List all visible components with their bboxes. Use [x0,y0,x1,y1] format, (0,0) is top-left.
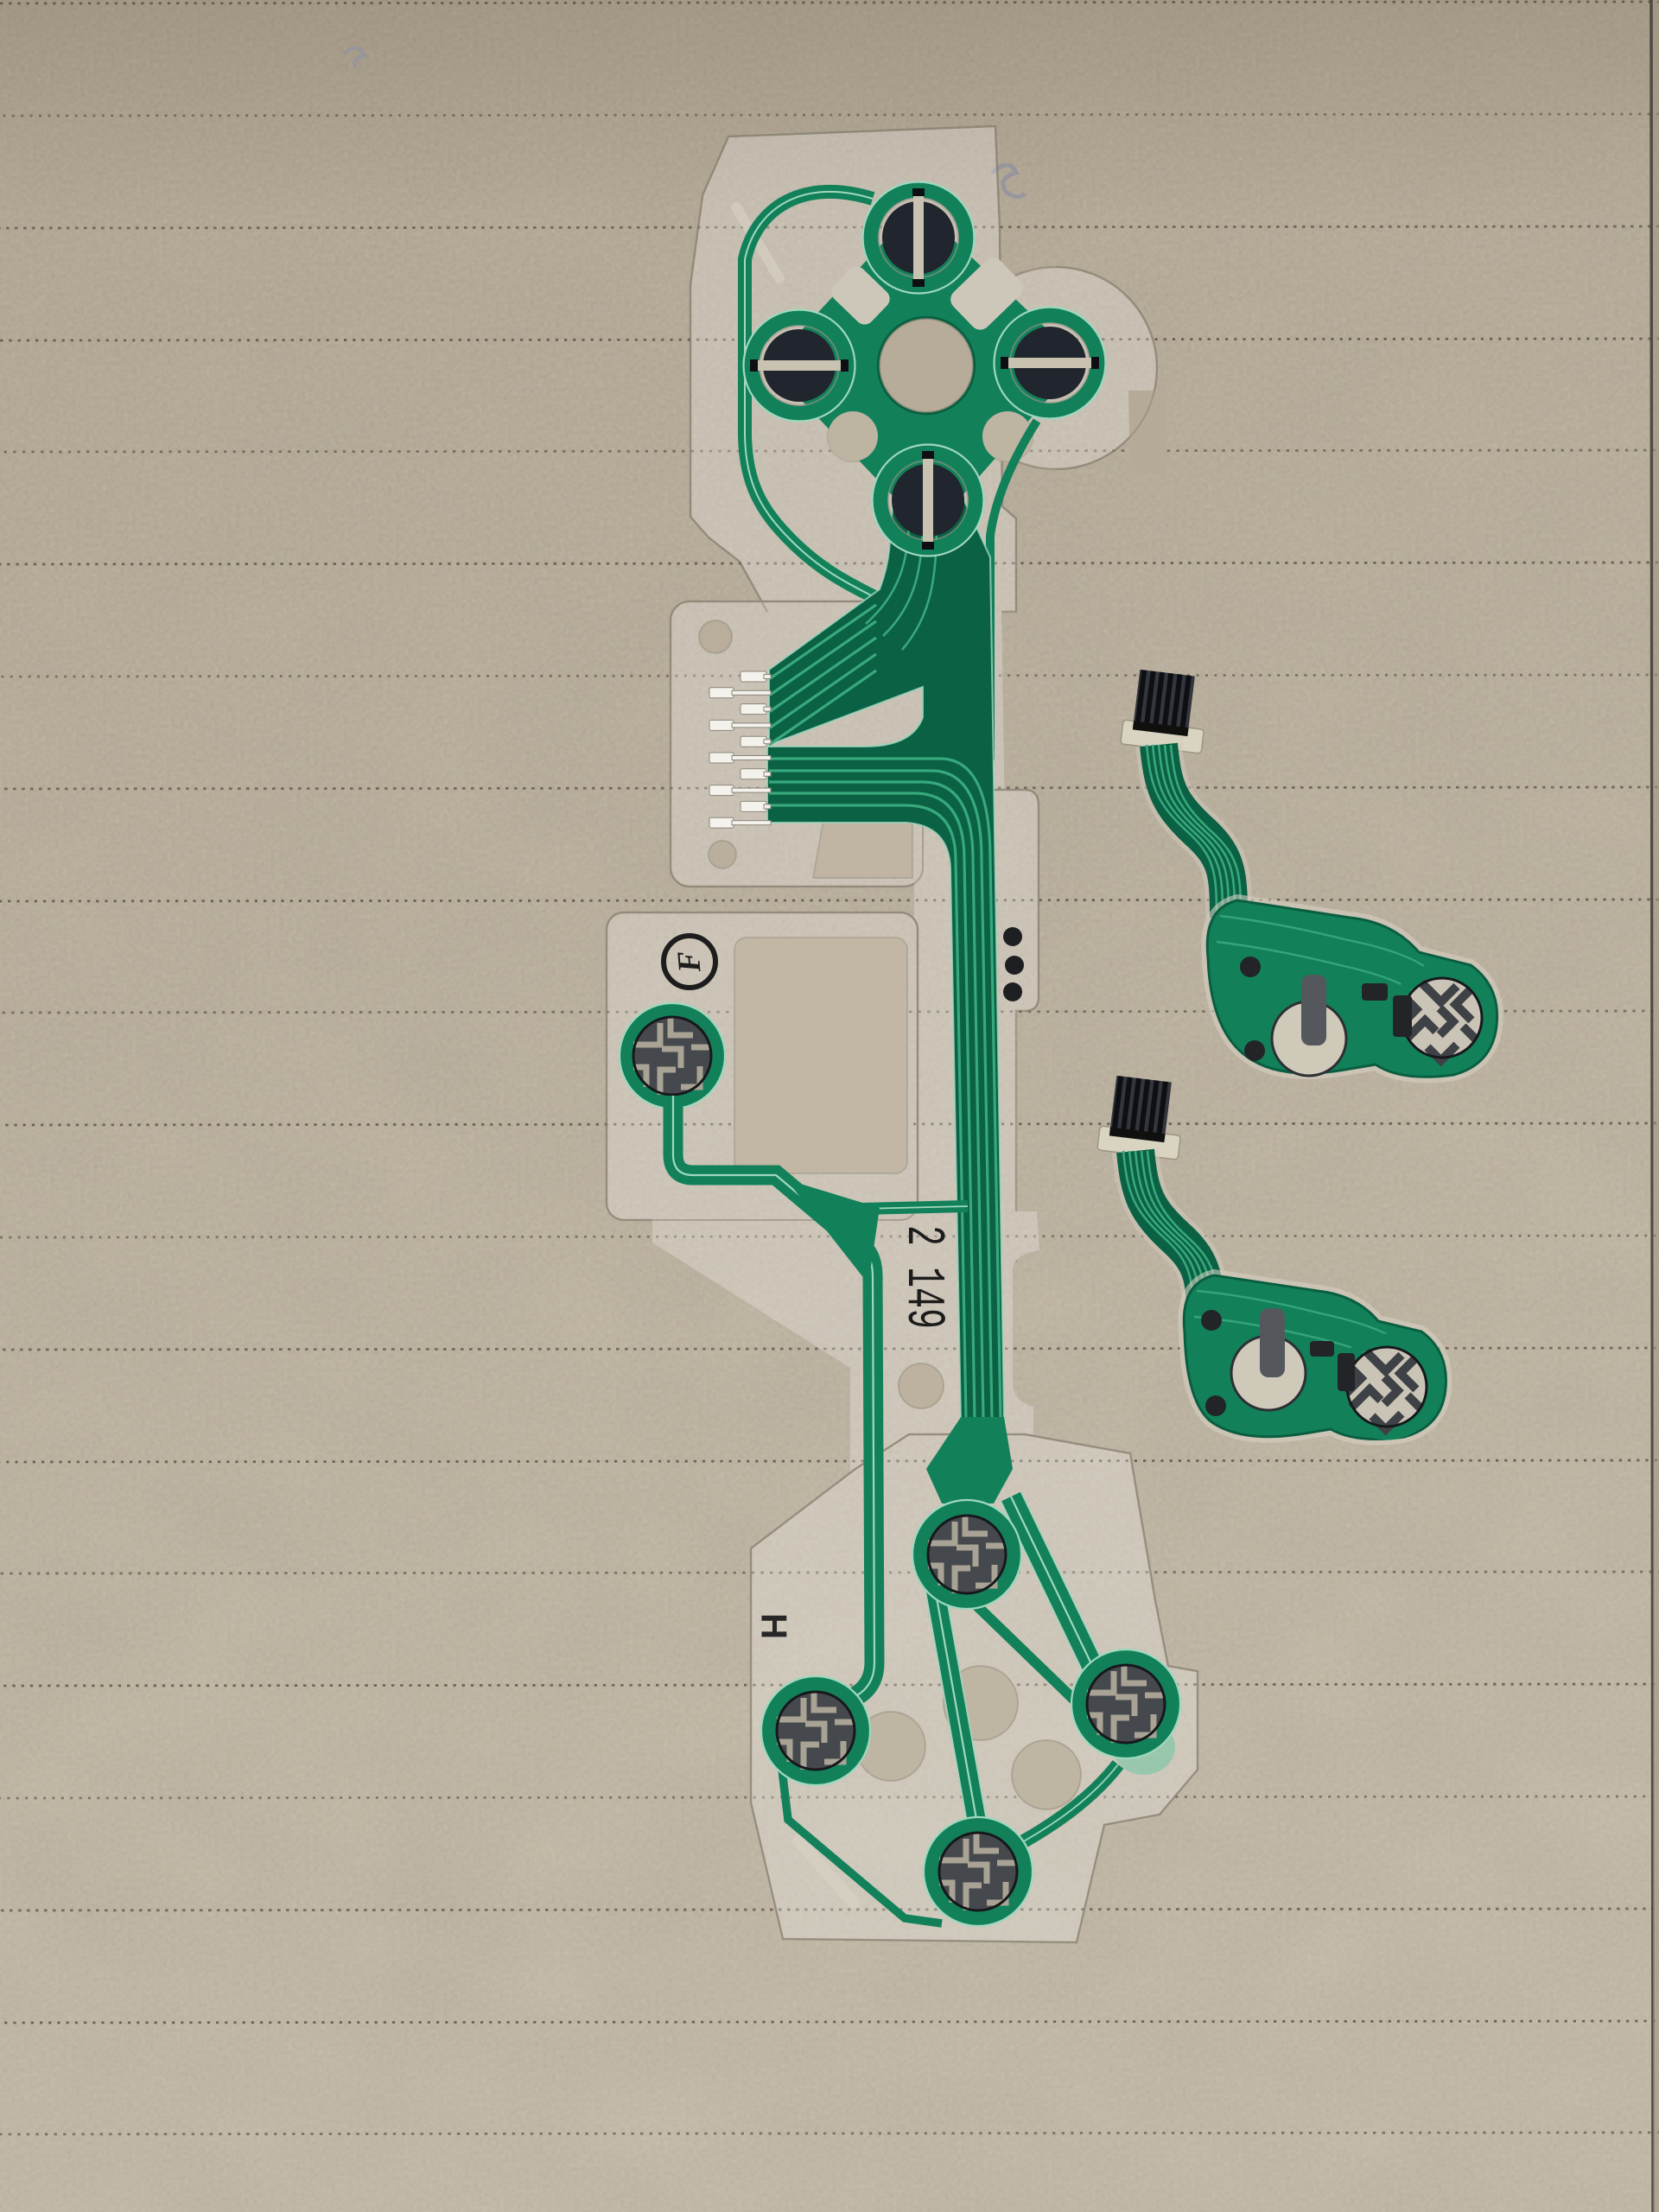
svg-text:2 149: 2 149 [893,1225,953,1329]
svg-text:H: H [754,1613,795,1639]
svg-text:F: F [671,950,708,975]
